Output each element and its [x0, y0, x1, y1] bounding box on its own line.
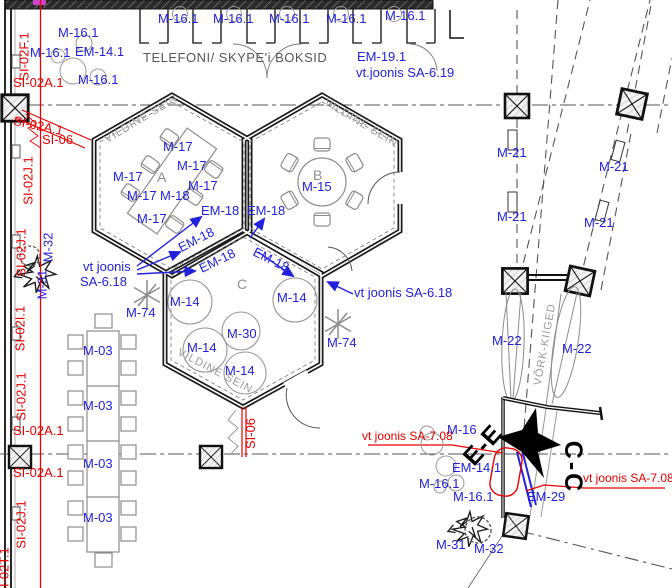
label-m30: M-30 [227, 327, 257, 340]
label-m16-tl-3: M-16.1 [78, 73, 118, 86]
label-m16-tl-2: M-16.1 [30, 46, 70, 59]
label-m03-2: M-03 [83, 399, 113, 412]
label-m16-booth-5: M-16.1 [385, 9, 425, 22]
label-m16-booth-1: M-16.1 [158, 12, 198, 25]
label-m17-3: M-17 [188, 179, 218, 192]
label-m31-left: M-31 [35, 270, 48, 300]
label-m14-2: M-14 [277, 291, 307, 304]
inner-wall-dashes [100, 102, 394, 400]
label-m31-bottom: M-31 [436, 538, 466, 551]
section-arrow [498, 408, 561, 478]
label-m21-4: M-21 [584, 216, 614, 229]
label-si02a1-3: SI-02A.1 [13, 424, 64, 437]
label-si02t1: SI-02T.1 [0, 547, 11, 588]
label-m14-4: M-14 [225, 364, 255, 377]
label-m22-1: M-22 [492, 334, 522, 347]
label-si02j1-4: SI-02J.1 [15, 500, 28, 548]
label-m14-3: M-14 [187, 341, 217, 354]
label-m21-1: M-21 [497, 146, 527, 159]
label-si02f1: SI-02F.1 [18, 32, 31, 80]
label-m16-br-2: M-16.1 [453, 490, 493, 503]
note-see-sa619: vt.joonis SA-6.19 [356, 66, 454, 79]
hexagon-rooms [94, 95, 400, 428]
label-m32-bottom: M-32 [474, 542, 504, 555]
label-si02j1-2: SI-02J.1 [15, 228, 28, 276]
label-em19-1: EM-19.1 [357, 50, 406, 63]
label-m17-5: M-17 [127, 189, 157, 202]
booths-caption: TELEFONI/ SKYPE'i BOKSID [143, 51, 327, 64]
label-m14-1: M-14 [170, 295, 200, 308]
note-see-sa618-left-1: vt joonis [83, 260, 131, 273]
note-see-sa708-right: vt joonis SA-7.08 [583, 472, 672, 484]
section-marker-cc: C-C [558, 441, 587, 494]
label-si02j1-1: SI-02J.1 [22, 156, 35, 204]
label-si06-top: SI-06 [42, 133, 73, 146]
floor-plan-drawing [0, 0, 672, 588]
room-letter-a: A [157, 171, 166, 184]
label-m32-left: M-32 [41, 233, 54, 263]
label-m03-3: M-03 [83, 457, 113, 470]
magenta-marker [33, 0, 46, 5]
label-si02i1: SI-02I.1 [13, 306, 26, 352]
wall-corner [450, 10, 464, 38]
label-m03-4: M-03 [83, 511, 113, 524]
label-m21-2: M-21 [599, 160, 629, 173]
label-m03-1: M-03 [83, 344, 113, 357]
label-m16-booth-2: M-16.1 [213, 12, 253, 25]
label-m21-3: M-21 [497, 210, 527, 223]
label-m74-left: M-74 [126, 306, 156, 319]
label-m16-booth-3: M-16.1 [269, 12, 309, 25]
label-m22-2: M-22 [562, 342, 592, 355]
label-m74-right: M-74 [327, 336, 357, 349]
room-letter-c: C [237, 278, 247, 291]
label-em18-h2: EM-18 [247, 204, 285, 217]
label-m17-4: M-17 [113, 170, 143, 183]
label-em18-h1: EM-18 [201, 204, 239, 217]
note-see-sa708-left: vt joonis SA-7.08 [362, 430, 453, 442]
note-see-sa618-right: vt joonis SA-6.18 [354, 286, 452, 299]
label-m17-2: M-17 [177, 159, 207, 172]
label-si02j1-3: SI-02J.1 [15, 372, 28, 420]
label-m17-1: M-17 [163, 140, 193, 153]
label-m16-booth-4: M-16.1 [326, 12, 366, 25]
label-m18: M-18 [160, 189, 190, 202]
label-m16-tl-1: M-16.1 [58, 26, 98, 39]
label-si02a1-4: SI-02A.1 [13, 466, 64, 479]
label-m15: M-15 [302, 180, 332, 193]
label-em14-tl: EM-14.1 [75, 45, 124, 58]
floor-plan-page: M-16.1 M-16.1 M-16.1 M-16.1 M-16.1 TELEF… [0, 0, 672, 588]
label-si02a1-1: SI-02A.1 [13, 76, 64, 89]
label-m17-6: M-17 [137, 212, 167, 225]
note-see-sa618-left-2: SA-6.18 [80, 275, 127, 288]
stage-structure [368, 397, 665, 518]
label-si06-bottom: SI-06 [244, 418, 257, 449]
